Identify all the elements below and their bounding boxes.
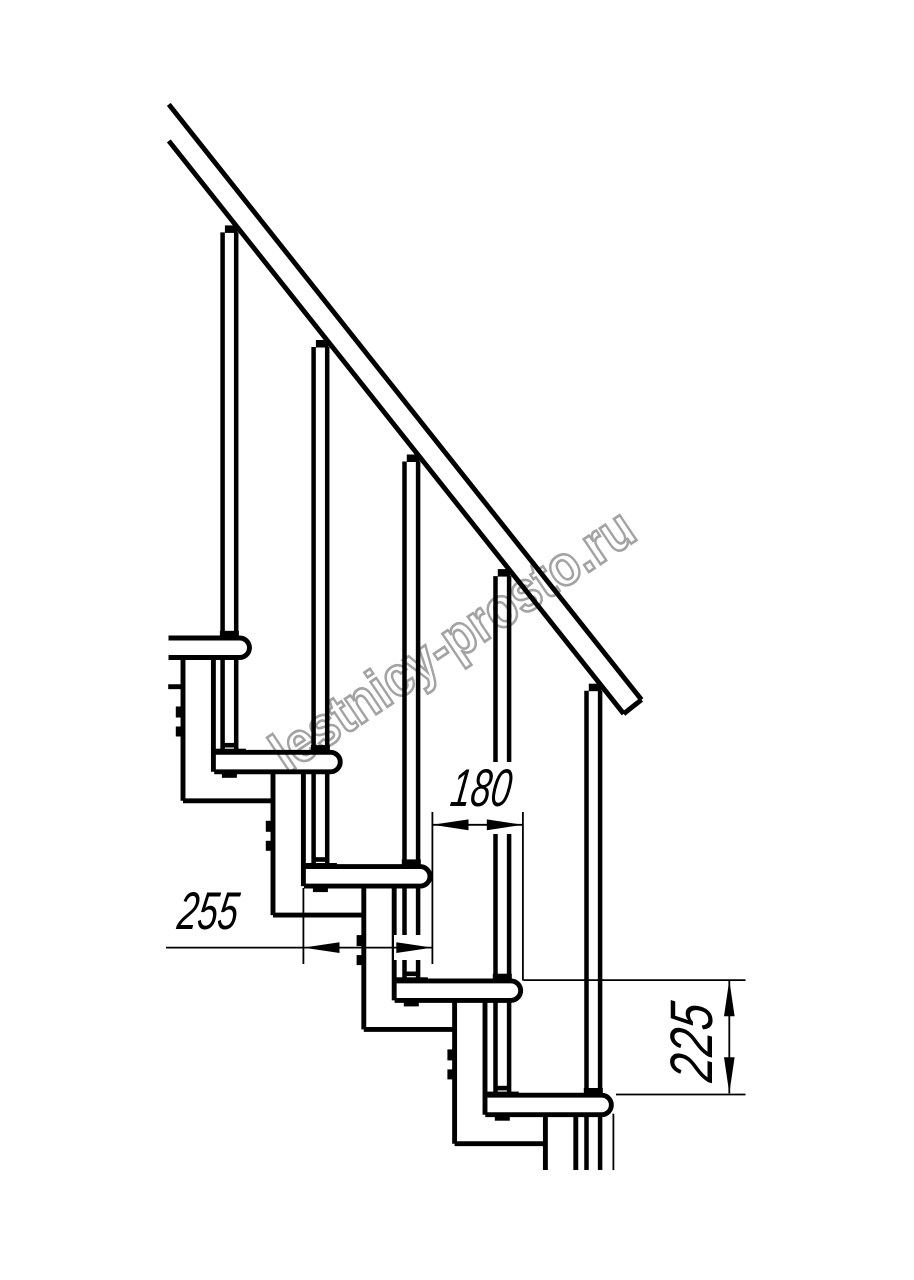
- svg-text:225: 225: [657, 998, 725, 1086]
- svg-text:255: 255: [174, 882, 243, 941]
- svg-text:180: 180: [447, 759, 516, 818]
